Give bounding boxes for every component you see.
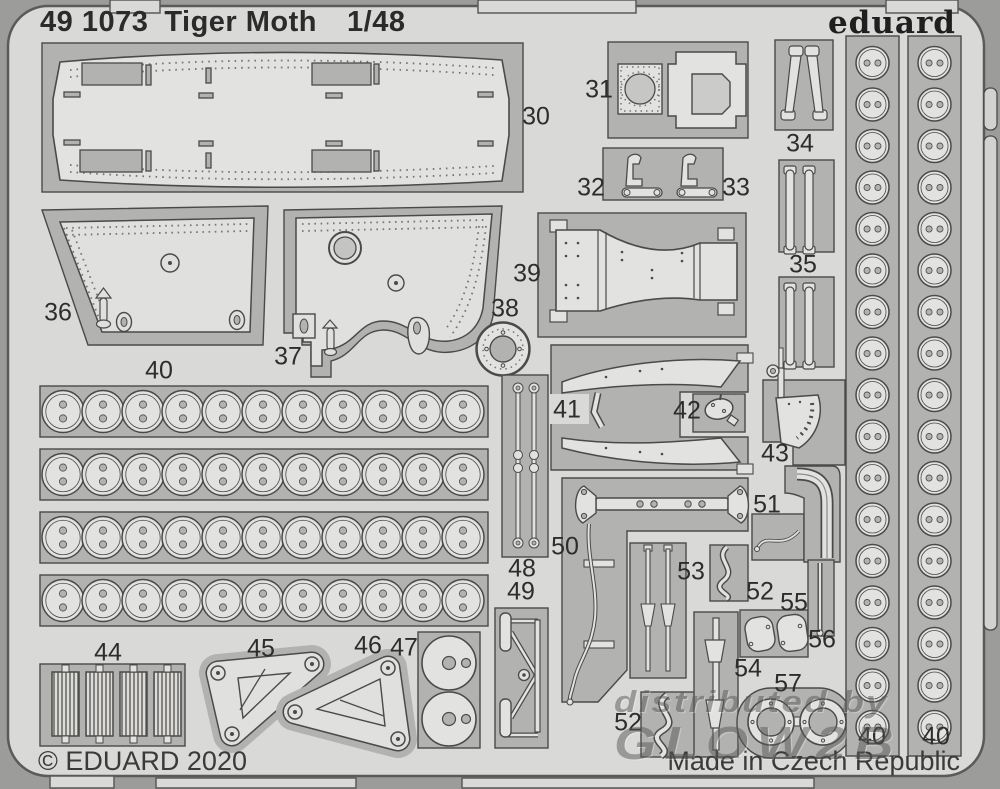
part-number-label-36: 36 (44, 301, 72, 326)
part-number-label-40: 40 (145, 359, 173, 384)
part-number-label-51: 51 (753, 493, 781, 518)
part-number-label-53: 53 (677, 560, 705, 585)
sheet-title: 49 1073 Tiger Moth 1/48 (40, 6, 405, 39)
part-number-label-38: 38 (491, 297, 519, 322)
part-number-label-44: 44 (94, 641, 122, 666)
part-number-label-55: 55 (780, 591, 808, 616)
product-photo-pe-sheet: 49 1073 Tiger Moth 1/48 eduard 303132333… (0, 0, 1000, 789)
part-number-label-52: 52 (614, 711, 642, 736)
part-number-label-37: 37 (274, 345, 302, 370)
part-number-label-35: 35 (789, 253, 817, 278)
part-number-label-34: 34 (786, 132, 814, 157)
part-number-label-56: 56 (808, 628, 836, 653)
part-number-label-33: 33 (722, 176, 750, 201)
part-number-label-41: 41 (553, 398, 581, 423)
watermark-line1: distributed by (614, 684, 1000, 720)
product-title: Tiger Moth (164, 6, 317, 39)
part-number-label-46: 46 (354, 634, 382, 659)
scale-label: 1/48 (347, 6, 405, 39)
part-number-label-39: 39 (513, 262, 541, 287)
part-number-label-32: 32 (577, 176, 605, 201)
part-number-label-50: 50 (551, 535, 579, 560)
part-number-label-30: 30 (522, 105, 550, 130)
part-number-label-43: 43 (761, 442, 789, 467)
part-number-label-47: 47 (390, 636, 418, 661)
made-in-text: Made in Czech Republic (667, 746, 960, 777)
part-number-label-49: 49 (507, 580, 535, 605)
catalog-number: 49 1073 (40, 6, 148, 39)
part-number-label-45: 45 (247, 637, 275, 662)
part-number-label-52: 52 (746, 580, 774, 605)
part-number-label-31: 31 (585, 78, 613, 103)
part-number-label-54: 54 (734, 657, 762, 682)
eduard-logo: eduard (828, 5, 956, 41)
part-number-label-57: 57 (774, 672, 802, 697)
copyright-text: © EDUARD 2020 (38, 746, 247, 777)
part-number-label-42: 42 (673, 399, 701, 424)
